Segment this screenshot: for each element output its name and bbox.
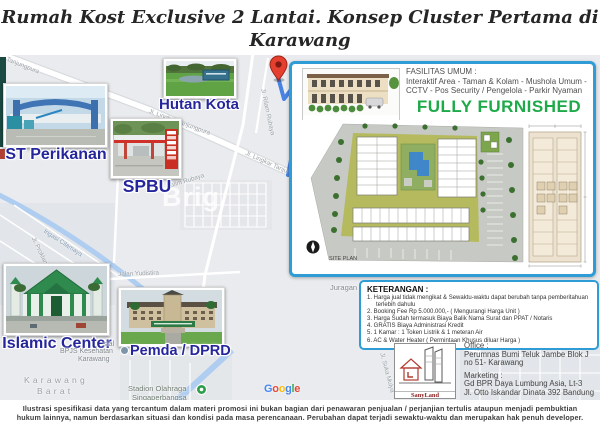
flyer-title: Rumah Kost Exclusive 2 Lantai. Konsep Cl…	[0, 0, 600, 55]
fasilitas-line-2: CCTV - Pos Security / Pengelola - Parkir…	[406, 86, 590, 96]
label-st-perikanan: ST Perikanan	[2, 146, 110, 164]
st-perikanan-photo	[3, 83, 108, 148]
compass-icon	[307, 241, 320, 254]
office-address-2: no 51- Karawang	[464, 359, 598, 368]
keterangan-item: 1. Harga jual tidak mengikat & Sewaktu-w…	[367, 295, 592, 309]
contact-info: Office : Perumnas Bumi Teluk Jambe Blok …	[464, 342, 598, 398]
unit-block-a	[357, 137, 397, 195]
courtyard-pool	[401, 144, 435, 190]
map-text-sial: sial	[103, 339, 114, 348]
keterangan-item: 4. GRATIS Biaya Administrasi Kredit	[367, 323, 592, 330]
road-label-yudistira: Jalan Yudistira	[118, 270, 159, 278]
islamic-center-image	[6, 266, 107, 333]
fasilitas-title: FASILITAS UMUM :	[406, 67, 590, 77]
pemda-dprd-image	[121, 290, 222, 344]
unit-block-b	[438, 139, 476, 197]
map-text-bpjs-2: Karawang	[78, 356, 110, 363]
fasilitas-umum: FASILITAS UMUM : Interaktif Area - Taman…	[406, 67, 590, 96]
keterangan-title: KETERANGAN :	[367, 285, 592, 294]
map-text-barat: Barat	[37, 386, 73, 396]
disclaimer: Ilustrasi spesifikasi data yang tercantu…	[0, 400, 600, 429]
st-perikanan-image	[6, 86, 105, 145]
map-text-stadion-2: Singaperbangsa	[132, 393, 187, 400]
disclaimer-line-1: Ilustrasi spesifikasi data yang tercantu…	[0, 404, 600, 413]
spbu-photo	[110, 118, 182, 179]
title-line-1: Rumah Kost Exclusive 2 Lantai. Konsep Cl…	[0, 6, 600, 52]
map-text-bpjs-1: BPJS Kesehatan	[60, 348, 113, 355]
site-plan-label: SITE PLAN	[329, 256, 357, 262]
developer-logo-mark	[395, 344, 455, 386]
map-text-juragan: Juragan	[330, 283, 357, 292]
hutan-kota-photo	[163, 58, 237, 99]
site-plan: SITE PLAN	[295, 120, 588, 270]
keterangan-list: 1. Harga jual tidak mengikat & Sewaktu-w…	[367, 295, 592, 345]
fasilitas-line-1: Interaktif Area - Taman & Kolam - Mushol…	[406, 77, 590, 87]
floor-plan	[529, 125, 587, 268]
pemda-poi-icon	[120, 346, 129, 355]
label-pemda-dprd: Pemda / DPRD	[130, 343, 231, 359]
developer-logo: SanyLand Development	[394, 343, 456, 399]
hutan-kota-image	[166, 61, 234, 96]
flyer: Rumah Kost Exclusive 2 Lantai. Konsep Cl…	[0, 0, 600, 429]
google-logo: Google	[264, 383, 300, 395]
project-panel: FASILITAS UMUM : Interaktif Area - Taman…	[289, 61, 596, 277]
google-letter: e	[294, 383, 300, 395]
keterangan-item: 2. Booking Fee Rp 5.000.000,- ( Menguran…	[367, 309, 592, 316]
pemda-dprd-photo	[118, 287, 225, 347]
keterangan-item: 3. Harga Sudah termasuk Biaya Balik Nama…	[367, 316, 592, 323]
spbu-image	[113, 121, 179, 176]
map-text-stadion-1: Stadion Olahraga	[128, 384, 186, 393]
disclaimer-line-2: hukum lainnya, namun berdasarkan situasi…	[0, 413, 600, 422]
label-hutan-kota: Hutan Kota	[158, 96, 240, 113]
stadium-icon	[196, 384, 207, 395]
islamic-center-photo	[3, 263, 110, 336]
fully-furnished-text: FULLY FURNISHED	[410, 97, 588, 117]
building-render-image	[303, 69, 399, 115]
map-pin-icon	[269, 55, 288, 81]
keterangan-box: KETERANGAN : 1. Harga jual tidak mengika…	[359, 280, 599, 350]
map-text-karawang: Karawang	[24, 375, 88, 385]
label-spbu: SPBU	[112, 176, 182, 197]
building-render-photo	[302, 68, 400, 121]
marketing-address-2: Jl. Otto Iskandar Dinata 392 Bandung	[464, 389, 598, 398]
keterangan-item: 5. 1 Kamar : 1 Token Listrik & 1 meteran…	[367, 330, 592, 337]
